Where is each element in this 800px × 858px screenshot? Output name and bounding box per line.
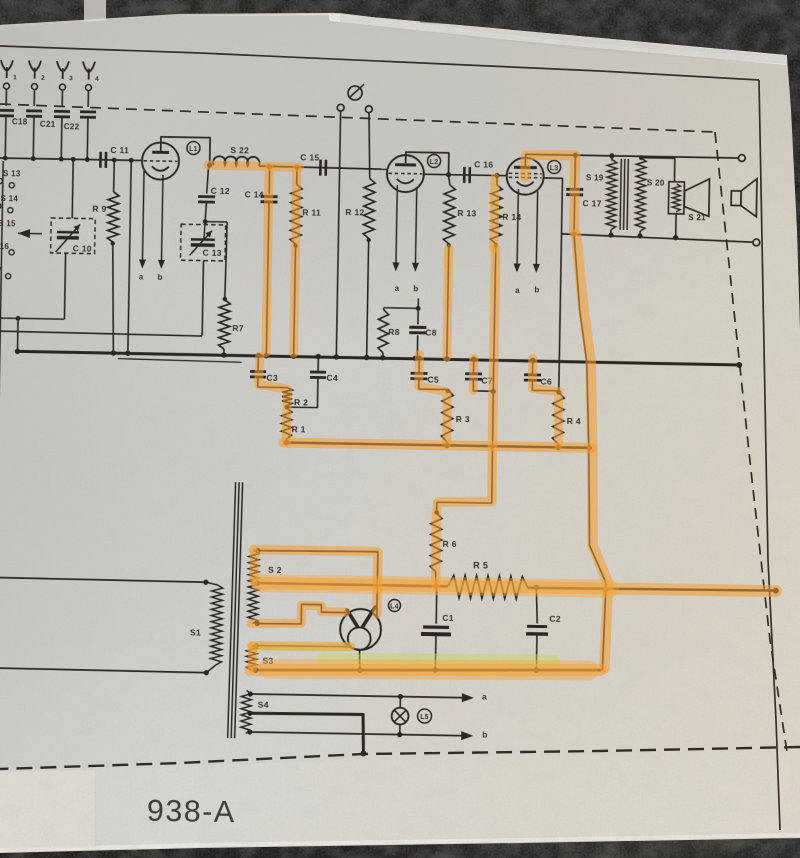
svg-text:R 12: R 12	[345, 207, 364, 217]
svg-text:a: a	[395, 284, 400, 293]
svg-text:R 11: R 11	[302, 207, 321, 217]
svg-text:C 13: C 13	[203, 248, 222, 258]
svg-text:C2: C2	[549, 614, 561, 624]
svg-text:L3: L3	[550, 165, 559, 172]
svg-text:b: b	[482, 730, 488, 740]
svg-text:L4: L4	[390, 603, 399, 610]
svg-text:C5: C5	[427, 375, 439, 385]
svg-text:C 16: C 16	[474, 159, 493, 169]
svg-text:b: b	[158, 273, 163, 282]
svg-text:C4: C4	[326, 373, 338, 383]
svg-text:C18: C18	[12, 117, 28, 126]
svg-text:C 12: C 12	[211, 186, 230, 196]
svg-text:L2: L2	[430, 159, 439, 166]
svg-text:S 2: S 2	[268, 565, 282, 575]
svg-text:b: b	[534, 285, 539, 294]
svg-text:S 13: S 13	[3, 169, 21, 178]
svg-text:a: a	[482, 692, 487, 702]
svg-text:L1: L1	[189, 146, 198, 153]
svg-text:R 13: R 13	[457, 208, 476, 218]
svg-text:R 6: R 6	[442, 539, 456, 549]
svg-text:R8: R8	[388, 327, 400, 337]
svg-text:a: a	[515, 286, 520, 295]
svg-text:C 11: C 11	[110, 145, 129, 155]
svg-text:S 22: S 22	[230, 145, 249, 155]
svg-text:C 17: C 17	[582, 198, 601, 208]
svg-text:4: 4	[95, 76, 99, 83]
svg-text:S4: S4	[258, 700, 269, 710]
svg-text:S1: S1	[190, 627, 201, 637]
svg-text:R 5: R 5	[473, 560, 488, 570]
svg-text:S 20: S 20	[647, 178, 665, 187]
svg-text:C8: C8	[425, 327, 437, 337]
svg-text:S 19: S 19	[586, 173, 604, 182]
svg-text:C 14: C 14	[245, 189, 264, 199]
svg-text:C3: C3	[266, 373, 278, 383]
svg-text:R 1: R 1	[291, 424, 305, 434]
svg-text:C21: C21	[40, 120, 56, 129]
svg-text:C 15: C 15	[300, 152, 319, 162]
svg-text:b: b	[413, 284, 418, 293]
svg-text:L5: L5	[420, 714, 429, 721]
svg-text:R 9: R 9	[92, 204, 106, 214]
svg-text:R 3: R 3	[456, 414, 470, 424]
svg-text:R 4: R 4	[567, 416, 581, 426]
svg-text:C 10: C 10	[73, 243, 92, 253]
svg-text:R 2: R 2	[294, 397, 308, 407]
svg-text:938-A: 938-A	[147, 794, 236, 830]
svg-text:1: 1	[13, 74, 17, 81]
svg-text:C1: C1	[442, 613, 454, 623]
svg-text:C22: C22	[64, 122, 80, 131]
svg-text:2: 2	[41, 75, 45, 82]
svg-text:a: a	[139, 272, 144, 281]
svg-text:3: 3	[69, 75, 73, 82]
svg-text:R7: R7	[232, 323, 244, 333]
